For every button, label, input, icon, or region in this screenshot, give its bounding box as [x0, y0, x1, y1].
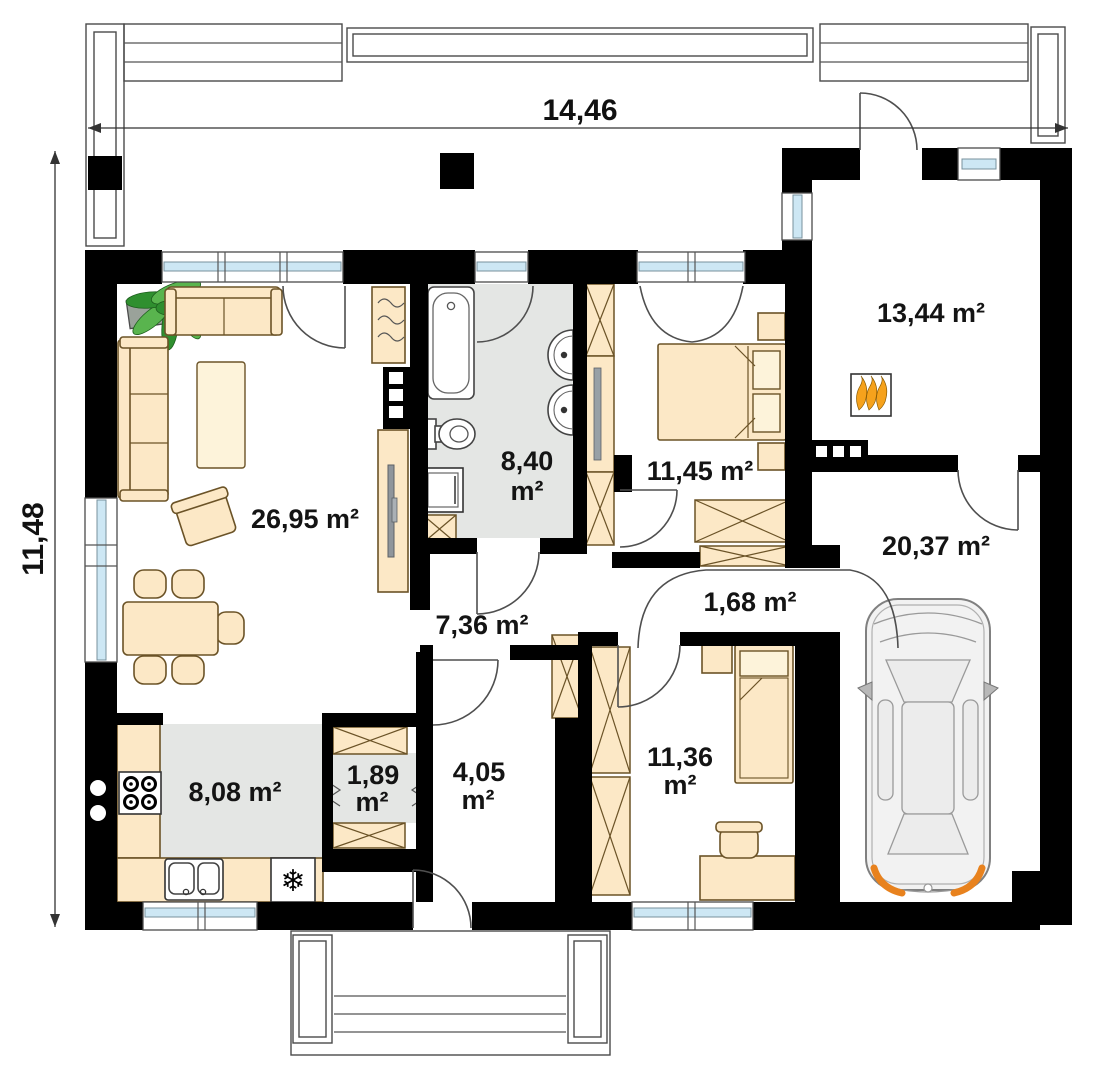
bathtub	[428, 287, 474, 399]
bedside-table	[702, 643, 732, 673]
dining-set	[123, 570, 244, 684]
snowflake-glyph: ❄	[280, 864, 305, 899]
wardrobe	[695, 500, 790, 542]
label-entry-1: 4,05	[453, 757, 506, 787]
pergola-right-column-inner	[1038, 34, 1058, 136]
dining-chair	[172, 570, 204, 598]
label-bathroom-1: 8,40	[501, 446, 554, 476]
porch-column-right-inner	[574, 941, 601, 1037]
desk	[700, 822, 795, 900]
label-entry-2: m²	[462, 785, 495, 815]
door-terrace-living	[283, 286, 345, 348]
window-bathroom	[475, 252, 528, 282]
fridge-icon: ❄	[271, 858, 315, 902]
dimension-width-label: 14,46	[542, 94, 617, 127]
label-living: 26,95 m²	[251, 504, 359, 534]
window-bedroom-bottom	[632, 902, 753, 930]
dimension-height-label: 11,48	[17, 502, 50, 575]
window-bedroom-top	[637, 252, 745, 282]
label-bedroom-top: 11,45 m²	[647, 456, 754, 486]
pergola-left-column	[86, 24, 124, 246]
floor-plan-page: ❄	[0, 0, 1097, 1080]
wardrobe	[590, 777, 630, 895]
pergola-beam-center	[347, 28, 813, 62]
pergola-left-column-pier	[88, 156, 122, 190]
wardrobe	[590, 647, 630, 773]
car-icon	[858, 599, 998, 893]
curtain-bedroom-top	[640, 286, 743, 342]
washing-machine	[423, 468, 463, 512]
armchair	[170, 486, 239, 548]
floor-plan-svg: ❄	[0, 0, 1097, 1080]
label-pantry-2: m²	[356, 787, 389, 817]
kitchen-sink	[165, 859, 223, 900]
wardrobe	[586, 472, 614, 545]
double-bed	[658, 344, 786, 440]
label-utility: 13,44 m²	[877, 298, 985, 328]
label-closet: 1,68 m²	[703, 587, 796, 617]
pergola-left-column-inner	[94, 32, 116, 238]
sliding-wardrobe	[586, 356, 614, 472]
wardrobe	[700, 546, 790, 566]
door-bathroom	[477, 552, 539, 614]
fireplace-icon	[851, 374, 891, 416]
label-pantry-1: 1,89	[347, 760, 400, 790]
window-utility-top	[958, 148, 1000, 180]
door-bedroom-top	[620, 490, 677, 547]
tv-sideboard	[378, 430, 408, 592]
car-roof	[902, 702, 954, 814]
car-side-window-right	[963, 700, 978, 800]
label-bedroom-bottom-2: m²	[664, 770, 697, 800]
sofa-three-seat	[118, 337, 168, 501]
label-bedroom-bottom-1: 11,36	[647, 742, 713, 772]
sofa-two-seat	[165, 287, 282, 335]
dimension-left: 11,48	[17, 151, 60, 927]
single-bed	[735, 645, 793, 783]
pergola-beam-center-inner	[353, 34, 807, 56]
pergola-beam-left	[124, 24, 342, 81]
nightstand	[758, 443, 785, 470]
dining-chair	[172, 656, 204, 684]
wardrobe	[333, 823, 405, 848]
nightstand	[758, 313, 785, 340]
wall-dot	[90, 805, 106, 821]
coffee-table	[197, 362, 245, 468]
window-kitchen	[143, 902, 257, 930]
wall-dot	[90, 780, 106, 796]
dining-chair	[216, 612, 244, 644]
pergola-beam-right	[820, 24, 1028, 81]
label-kitchen: 8,08 m²	[188, 777, 281, 807]
label-hall: 7,36 m²	[435, 610, 528, 640]
dining-table	[123, 602, 218, 655]
label-bathroom-2: m²	[511, 476, 544, 506]
door-hall-entry	[433, 660, 498, 725]
dining-chair	[134, 570, 166, 598]
window-living	[162, 252, 343, 282]
terrace-chimney-pier	[440, 153, 474, 189]
dimension-top: 14,46	[88, 94, 1068, 133]
pergola	[86, 24, 1065, 246]
dining-chair	[134, 656, 166, 684]
car-side-window-left	[878, 700, 893, 800]
toilet	[423, 419, 475, 449]
door-garage-hall	[958, 470, 1018, 530]
wardrobe	[586, 284, 614, 356]
label-garage: 20,37 m²	[882, 531, 990, 561]
stove-icon	[119, 772, 161, 814]
door-utility-exterior	[860, 93, 917, 150]
porch-column-left-inner	[299, 941, 326, 1037]
radiator-cabinet	[372, 287, 405, 363]
window-utility-side	[782, 193, 812, 240]
entrance-porch	[291, 931, 610, 1055]
porch-outline	[291, 931, 610, 1055]
window-living-side	[85, 498, 117, 662]
wardrobe	[333, 727, 407, 754]
